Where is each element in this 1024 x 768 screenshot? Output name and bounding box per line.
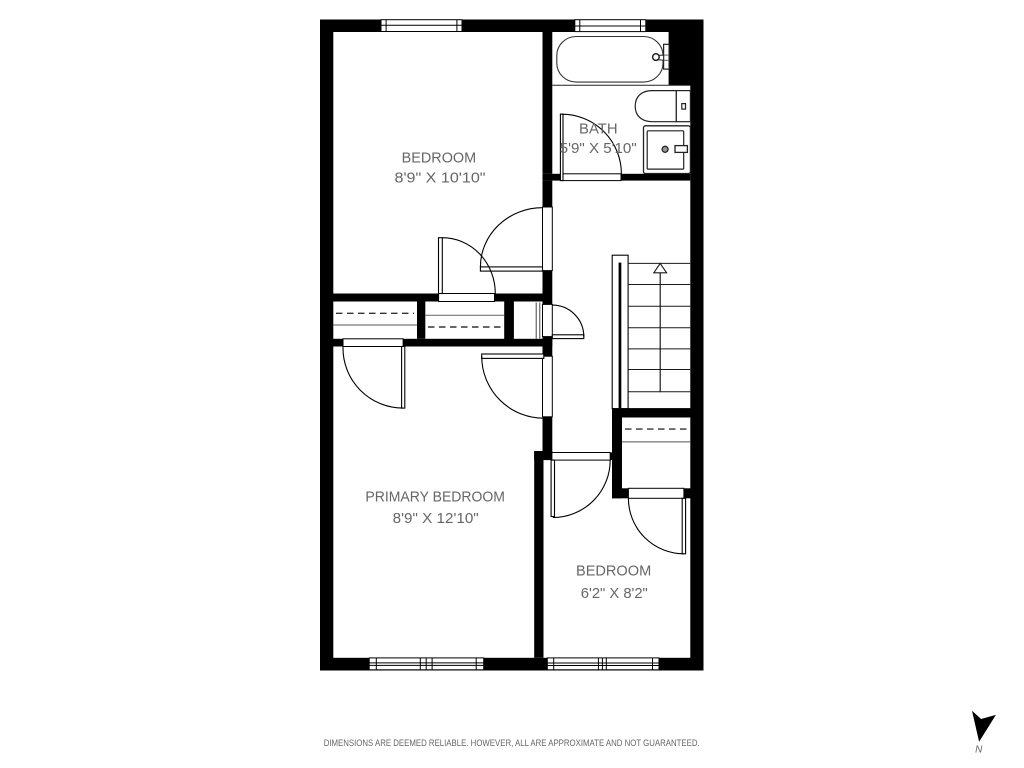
svg-text:DIMENSIONS ARE DEEMED RELIABLE: DIMENSIONS ARE DEEMED RELIABLE. HOWEVER,… xyxy=(324,738,700,749)
svg-text:BEDROOM: BEDROOM xyxy=(576,562,651,579)
svg-text:PRIMARY BEDROOM: PRIMARY BEDROOM xyxy=(365,488,505,505)
svg-text:BEDROOM: BEDROOM xyxy=(402,150,477,167)
svg-text:6'2" X 8'2": 6'2" X 8'2" xyxy=(581,585,648,602)
svg-text:N: N xyxy=(975,745,983,756)
svg-text:8'9" X 10'10": 8'9" X 10'10" xyxy=(395,170,486,187)
svg-text:8'9" X 12'10": 8'9" X 12'10" xyxy=(393,510,479,527)
svg-text:BATH: BATH xyxy=(579,121,618,138)
svg-text:5'9" X 5'10": 5'9" X 5'10" xyxy=(560,140,637,157)
